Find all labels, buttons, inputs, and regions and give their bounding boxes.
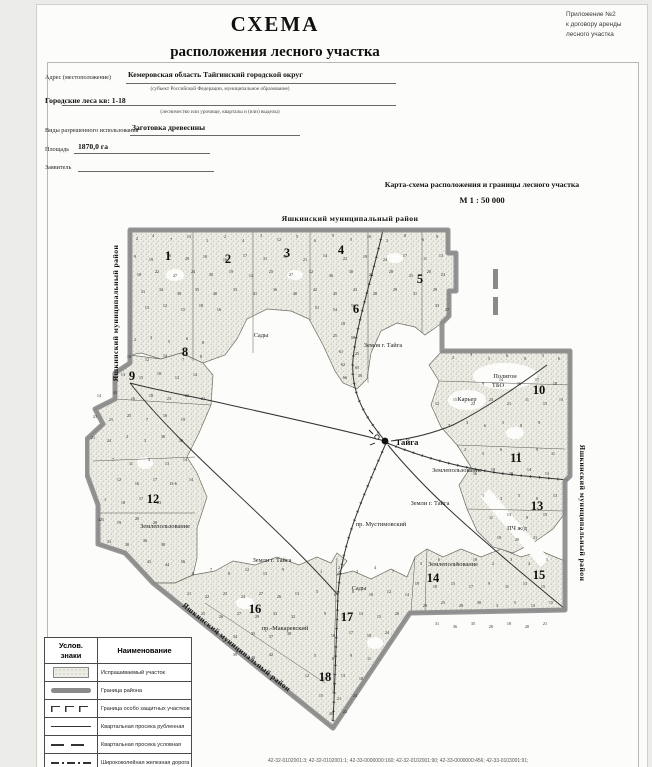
parcel-number: 1	[482, 493, 484, 498]
use-label: Виды разрешенного использования	[45, 127, 139, 134]
quarter-number: 9	[129, 369, 135, 383]
parcel-number: 28	[373, 291, 377, 296]
parcel-number: 7	[210, 567, 212, 572]
quarter-number: 13	[531, 499, 544, 513]
parcel-number: 425	[98, 517, 104, 522]
parcel-number: 12	[305, 673, 309, 678]
parcel-number: 5	[488, 356, 490, 361]
map-place-label: Карьер	[457, 396, 476, 403]
parcel-number: 45	[333, 291, 337, 296]
parcel-number: 30	[349, 269, 353, 274]
parcel-number: 27	[445, 307, 449, 312]
parcel-number: 36	[143, 538, 147, 543]
parcel-number: 22	[155, 269, 159, 274]
parcel-number: 35	[471, 621, 475, 626]
parcel-number: 16	[517, 381, 521, 386]
quarter-number: 15	[533, 568, 546, 582]
parcel-number: 3	[356, 569, 358, 574]
legend-name: Квартальная просека условная	[98, 736, 191, 753]
parcel-number: 7	[170, 237, 172, 242]
legend-symbol-cell	[45, 682, 98, 699]
parcel-number: 23	[223, 591, 227, 596]
attachment-note-line: лесного участка	[566, 30, 648, 40]
legend-table: Услов. знаки Наименование Испрашиваемый …	[44, 637, 192, 767]
parcel-number: 19	[181, 417, 185, 422]
address-caption: (субъект Российской Федерации, муниципал…	[120, 86, 320, 92]
parcel-number: 17	[403, 253, 407, 258]
parcel-number: 18	[491, 467, 495, 472]
map-title: Карта-схема расположения и границы лесно…	[362, 180, 602, 189]
parcel-number: 21	[201, 396, 205, 401]
parcel-number: 30	[125, 542, 129, 547]
quarter-number: 1	[165, 249, 171, 263]
quarter-number: 8	[182, 345, 188, 359]
parcel-number: 15	[319, 693, 323, 698]
parcel-number: 23	[489, 397, 493, 402]
parcel-number: 2	[452, 355, 454, 360]
parcel-number: 15	[139, 375, 143, 380]
parcel-number: 7	[392, 569, 394, 574]
parcel-number: 11	[551, 451, 555, 456]
parcel-number: 6	[558, 356, 560, 361]
parcel-number: 41	[253, 291, 257, 296]
parcel-number: 18	[157, 371, 161, 376]
parcel-number: 37	[269, 634, 273, 639]
legend-name: Ширококолейная железная дорога	[98, 754, 191, 767]
parcel-number: 21	[543, 621, 547, 626]
parcel-number: 28	[459, 603, 463, 608]
parcel-number: 14	[97, 393, 102, 398]
area-symbol	[53, 667, 89, 678]
parcel-number: 6	[506, 353, 508, 358]
parcel-number: 5	[482, 451, 484, 456]
parcel-number: 65	[355, 365, 359, 370]
parcel-number: 9	[538, 420, 540, 425]
parcel-number: 8	[202, 340, 204, 345]
address-underline	[126, 82, 396, 84]
parcel-number: 6	[192, 571, 194, 576]
parcel-number: 29	[423, 603, 427, 608]
parcel-number: 5	[542, 353, 544, 358]
parcel-number: 13	[439, 253, 443, 258]
map-place-label: ТБО	[492, 382, 505, 389]
parcel-number: 13	[523, 581, 527, 586]
parcel-number: 1	[320, 569, 322, 574]
parcel-number: 3	[510, 557, 512, 562]
parcel-number: 29	[433, 287, 437, 292]
parcel-number: 51	[315, 305, 319, 310]
parcel-number: 8	[520, 423, 522, 428]
forest-caption: (лесничество или урочище, кварталы и (ил…	[120, 109, 320, 115]
parcel-number: 11	[505, 584, 509, 589]
parcel-number: 5	[546, 557, 548, 562]
parcel-number: 12	[145, 357, 149, 362]
parcel-number: 11	[129, 461, 133, 466]
parcel-number: 7	[448, 423, 450, 428]
legend-symbol-cell	[45, 664, 98, 681]
parcel-number: 27	[289, 272, 293, 277]
quarter-number: 16	[249, 602, 262, 616]
district-border-symbol	[51, 688, 91, 693]
parcel-number: 26	[277, 594, 281, 599]
parcel-number: 9	[282, 567, 284, 572]
parcel-number: 12	[387, 589, 391, 594]
quarter-number: 12	[147, 492, 160, 506]
parcel-number: 6	[500, 447, 502, 452]
parcel-number: 3	[150, 335, 152, 340]
parcel-number: 16	[131, 396, 135, 401]
parcel-number: 21	[187, 591, 191, 596]
parcel-number: 66	[343, 375, 347, 380]
map-place-label: Земли г. Тайга	[253, 557, 292, 564]
parcel-number: 27	[237, 611, 241, 616]
parcel-number: 18	[341, 321, 345, 326]
parcel-number: 28	[389, 269, 393, 274]
map-place-label: Полигон	[493, 373, 517, 380]
parcel-number: 22	[185, 393, 189, 398]
legend-symbol-cell	[45, 736, 98, 753]
parcel-number: 18	[137, 272, 141, 277]
parcel-number: 31	[263, 256, 267, 261]
map-place-label: пр. Мустимовский	[356, 521, 407, 528]
parcel-number: 16	[331, 633, 335, 638]
quarter-number: 3	[284, 246, 290, 260]
parcel-number: 12	[277, 237, 281, 242]
parcel-number: 43	[113, 390, 117, 395]
parcel-number: 2	[386, 238, 388, 243]
use-value: Заготовка древесины	[132, 123, 205, 132]
parcel-number: 15	[541, 584, 545, 589]
district-label: Яшкинский муниципальный район	[578, 445, 587, 582]
map-place-label: Сады	[254, 332, 269, 339]
parcel-number: 2	[464, 447, 466, 452]
parcel-number: 11	[525, 397, 529, 402]
parcel-number: 20	[525, 624, 529, 629]
parcel-number: 13	[121, 372, 125, 377]
applicant-label: Заявитель	[45, 164, 71, 171]
parcel-number: 33	[233, 287, 237, 292]
parcel-number: 5	[502, 420, 504, 425]
forest-underline	[62, 104, 396, 106]
parcel-number: 21	[507, 401, 511, 406]
parcel-number: 12	[163, 303, 167, 308]
parcel-number: 13	[553, 493, 557, 498]
line-thin-symbol	[51, 726, 91, 727]
parcel-number: 5	[314, 653, 316, 658]
parcel-number: 22	[369, 272, 373, 277]
quarter-number: 11	[510, 451, 522, 465]
parcel-number: 5	[518, 493, 520, 498]
parcel-number: 30	[179, 438, 183, 443]
parcel-number: 32	[309, 269, 313, 274]
area-underline	[74, 152, 210, 154]
parcel-number: 12	[249, 273, 253, 278]
parcel-number: 18	[199, 303, 203, 308]
parcel-number: 15	[543, 401, 547, 406]
parcel-number: 25	[355, 351, 359, 356]
parcel-number: 18	[149, 393, 153, 398]
scanned-document-page: Приложение №2 к договору аренды лесного …	[0, 0, 652, 767]
parcel-number: 15	[181, 307, 185, 312]
quarter-number: 14	[427, 571, 440, 585]
parcel-number: 25	[127, 413, 131, 418]
parcel-number: 15	[377, 614, 381, 619]
legend-header-name: Наименование	[98, 638, 191, 663]
parcel-number: 21	[337, 696, 341, 701]
parcel-number: 9	[324, 611, 326, 616]
parcel-number: 10	[367, 234, 371, 239]
parcel-number: 21	[109, 417, 113, 422]
legend-name: Испрашиваемый участок	[98, 664, 191, 681]
parcel-number: 10	[163, 413, 167, 418]
parcel-number: 9	[536, 447, 538, 452]
parcel-number: 3	[470, 352, 472, 357]
parcel-number: 16	[135, 481, 139, 486]
parcel-number: 17	[153, 477, 157, 482]
parcel-number: 6	[422, 237, 424, 242]
legend-row: Ширококолейная железная дорога	[45, 754, 191, 767]
parcel-number: 43	[353, 287, 357, 292]
parcel-number: 19	[415, 581, 419, 586]
parcel-number: 20	[489, 624, 493, 629]
legend-symbol-cell	[45, 718, 98, 735]
area-value: 1870,0 га	[78, 142, 108, 151]
parcel-number: 2	[492, 561, 494, 566]
parcel-number: 36	[273, 287, 277, 292]
parcel-number: 5	[420, 561, 422, 566]
legend-row: Граница района	[45, 682, 191, 700]
legend-symbol-cell	[45, 700, 98, 717]
parcel-number: 20	[395, 611, 399, 616]
parcel-number: 15	[451, 581, 455, 586]
parcel-number: 6	[314, 238, 316, 243]
document-subtitle: расположения лесного участка	[85, 44, 465, 61]
legend-row: Испрашиваемый участок	[45, 664, 191, 682]
parcel-number: 5	[168, 339, 170, 344]
parcel-number: 26	[219, 614, 223, 619]
parcel-number: 1	[104, 497, 106, 502]
parcel-number: 5	[316, 589, 318, 594]
parcel-number: 31	[413, 291, 417, 296]
protected-border-symbol	[51, 706, 91, 712]
parcel-number: 12	[117, 477, 121, 482]
parcel-number: 61	[339, 349, 343, 354]
legend-symbol-cell	[45, 754, 98, 767]
parcel-number: 19	[117, 520, 121, 525]
map-place-label: Землепользование	[428, 561, 478, 568]
parcel-number: 3	[260, 233, 262, 238]
railroad-symbol	[51, 762, 91, 764]
parcel-number: 15	[549, 600, 553, 605]
parcel-number: 2	[338, 565, 340, 570]
map-place-label: пр.-Макаревский	[262, 625, 309, 632]
parcel-number: 25	[269, 269, 273, 274]
parcel-number: 58	[351, 335, 355, 340]
map-title-block: Карта-схема расположения и границы лесно…	[362, 180, 602, 205]
parcel-number: 20	[185, 256, 189, 261]
map-place-label: Землепользование	[140, 523, 190, 530]
quarter-number: 18	[319, 670, 332, 684]
parcel-number: 13	[187, 234, 191, 239]
attachment-note-line: Приложение №2	[566, 10, 648, 20]
legend-name: Граница особо защитных участков	[98, 700, 191, 717]
parcel-number: 20	[515, 537, 519, 542]
legend-header-symbols: Услов. знаки	[45, 638, 98, 663]
parcel-number: 13	[531, 603, 535, 608]
parcel-number: 23	[441, 272, 445, 277]
parcel-number: 9	[134, 254, 136, 259]
parcel-number: 33	[435, 303, 439, 308]
boundary-dash	[493, 269, 498, 289]
applicant-underline	[78, 170, 214, 172]
parcel-number: 31	[141, 289, 145, 294]
title-block: СХЕМА расположения лесного участка	[85, 12, 465, 61]
parcel-number: 10	[203, 254, 207, 259]
parcel-number: 6	[334, 592, 336, 597]
parcel-number: 30	[358, 373, 362, 378]
parcel-number: 18	[367, 633, 371, 638]
parcel-number: 31	[435, 621, 439, 626]
parcel-number: 40	[213, 291, 217, 296]
parcel-number: 19	[149, 257, 153, 262]
quarter-number: 17	[341, 610, 354, 624]
parcel-number: 36	[453, 624, 457, 629]
parcel-number: 3	[148, 457, 150, 462]
parcel-number: 13	[263, 571, 267, 576]
map-place-label: Земля г. Тайга	[364, 342, 403, 349]
parcel-number: 30	[209, 272, 213, 277]
parcel-number: 3	[144, 438, 146, 443]
parcel-number: 7	[146, 417, 148, 422]
parcel-number: 30	[477, 600, 481, 605]
parcel-number: 13	[359, 611, 363, 616]
parcel-number: 13	[545, 471, 549, 476]
parcel-number: 3	[466, 420, 468, 425]
parcel-number: 33	[273, 611, 277, 616]
parcel-number: 13	[341, 673, 345, 678]
parcel-number: 10	[369, 592, 373, 597]
parcel-number: 15	[543, 512, 547, 517]
map-place-label: Тайга	[396, 437, 420, 447]
parcel-number: 23	[93, 414, 97, 419]
parcel-number: 23	[167, 396, 171, 401]
parcel-number: 21	[533, 535, 537, 540]
legend-header: Услов. знаки Наименование	[45, 638, 191, 664]
parcel-number: 8	[200, 354, 202, 359]
line-dashed-symbol	[51, 744, 91, 746]
parcel-number: 10	[127, 354, 131, 359]
parcel-number: 27	[259, 591, 263, 596]
legend-header-symbols-line1: Услов.	[45, 641, 97, 651]
parcel-number: 29	[393, 287, 397, 292]
use-underline	[130, 134, 300, 136]
parcel-number: 17	[469, 584, 473, 589]
parcel-number: 9	[436, 234, 438, 239]
parcel-number: 6	[186, 336, 188, 341]
parcel-number: 43	[147, 559, 151, 564]
parcel-number: 38	[161, 542, 165, 547]
parcel-number: 9	[488, 581, 490, 586]
parcel-number: 2	[224, 234, 226, 239]
district-label: Яшкинский муниципальный район	[111, 245, 120, 382]
parcel-number: 12	[435, 401, 439, 406]
parcel-number: 8	[332, 656, 334, 661]
parcel-number: 6	[484, 423, 486, 428]
parcel-number: 7	[112, 457, 114, 462]
parcel-number: 11	[367, 656, 371, 661]
legend-row: Квартальная просека условная	[45, 736, 191, 754]
parcel-number: 27	[173, 273, 177, 278]
area-label: Площадь	[45, 146, 69, 153]
parcel-number: 20	[135, 516, 139, 521]
parcel-number: 19	[497, 535, 501, 540]
map-place-label: Землепользование	[432, 467, 482, 474]
parcel-number: 16	[217, 307, 221, 312]
parcel-number: 2	[136, 236, 138, 241]
legend-rows: Испрашиваемый участокГраница районаГрани…	[45, 664, 191, 767]
parcel-number: 9	[526, 515, 528, 520]
legend-header-symbols-line2: знаки	[45, 651, 97, 661]
map-place-label: Земли г. Тайга	[411, 500, 450, 507]
parcel-number: 56	[181, 559, 185, 564]
parcel-number: 13	[165, 461, 169, 466]
parcel-number: 17	[139, 496, 143, 501]
parcel-number: 62	[341, 362, 345, 367]
quarter-number: 6	[353, 302, 359, 316]
parcel-number: 5	[350, 237, 352, 242]
attachment-note-line: к договору аренды	[566, 20, 648, 30]
parcel-number: 38	[177, 291, 181, 296]
parcel-number: 17	[349, 630, 353, 635]
parcel-number: 32	[291, 614, 295, 619]
parcel-number: 18	[121, 500, 125, 505]
parcel-number: 30	[161, 434, 165, 439]
parcel-number: 42	[313, 287, 317, 292]
parcel-number: 42	[269, 652, 273, 657]
parcel-number: 35	[251, 631, 255, 636]
parcel-number: 20	[329, 711, 333, 716]
parcel-number: 8	[228, 571, 230, 576]
parcel-number: 17	[535, 377, 539, 382]
parcel-number: 11	[423, 256, 427, 261]
parcel-number: 1	[206, 238, 208, 243]
quarter-number: 5	[417, 272, 423, 286]
parcel-number: 35	[195, 287, 199, 292]
parcel-number: 20	[427, 269, 431, 274]
legend-name: Граница района	[98, 682, 191, 699]
parcel-number: 22	[343, 709, 347, 714]
parcel-number: 12	[245, 567, 249, 572]
attachment-note: Приложение №2 к договору аренды лесного …	[566, 10, 648, 40]
parcel-number: 40	[293, 291, 297, 296]
parcel-number: 9	[332, 233, 334, 238]
parcel-number: 21	[303, 257, 307, 262]
boundary-dash	[493, 297, 498, 315]
parcel-number: 18	[553, 381, 557, 386]
address-value: Кемеровская область Тайгинский городской…	[128, 70, 303, 79]
parcel-number: 25	[333, 333, 337, 338]
parcel-number: 13	[145, 305, 149, 310]
parcel-number: 5	[296, 234, 298, 239]
map-place-label: Сады	[352, 585, 367, 592]
parcel-number: 8	[404, 233, 406, 238]
legend-row: Граница особо защитных участков	[45, 700, 191, 718]
parcel-number: 33	[107, 539, 111, 544]
cadastral-numbers: 42-32-0102001:3; 42-32-0102001:1; 42-33-…	[268, 758, 529, 764]
parcel-number: 9	[350, 653, 352, 658]
parcel-number: 36	[329, 273, 333, 278]
parcel-number: 5	[514, 600, 516, 605]
